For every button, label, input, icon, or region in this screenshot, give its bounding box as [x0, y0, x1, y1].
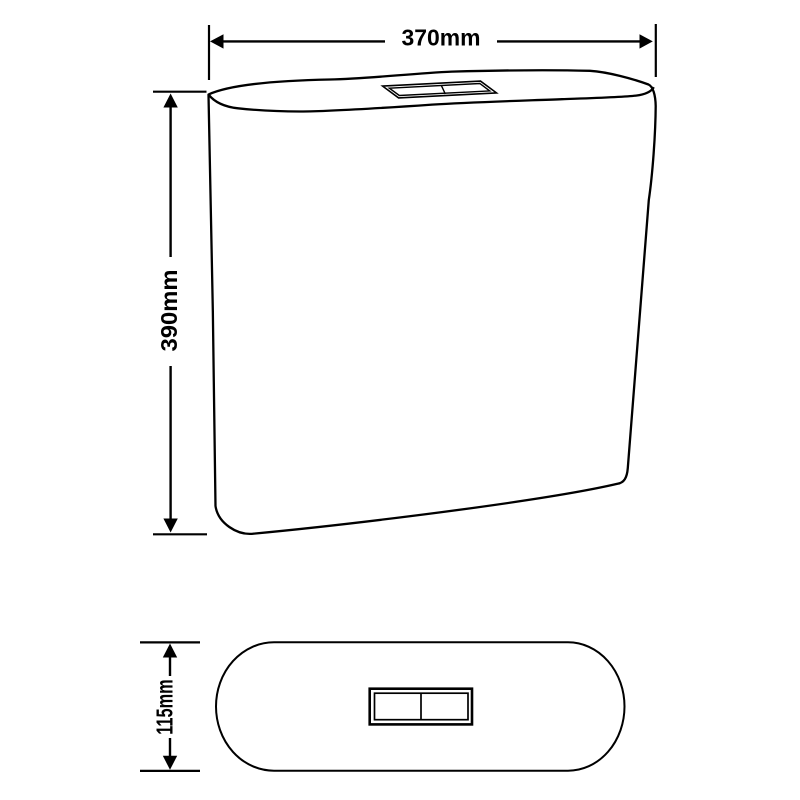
svg-text:115mm: 115mm [152, 679, 178, 735]
svg-text:390mm: 390mm [156, 270, 182, 352]
svg-text:370mm: 370mm [402, 25, 481, 51]
